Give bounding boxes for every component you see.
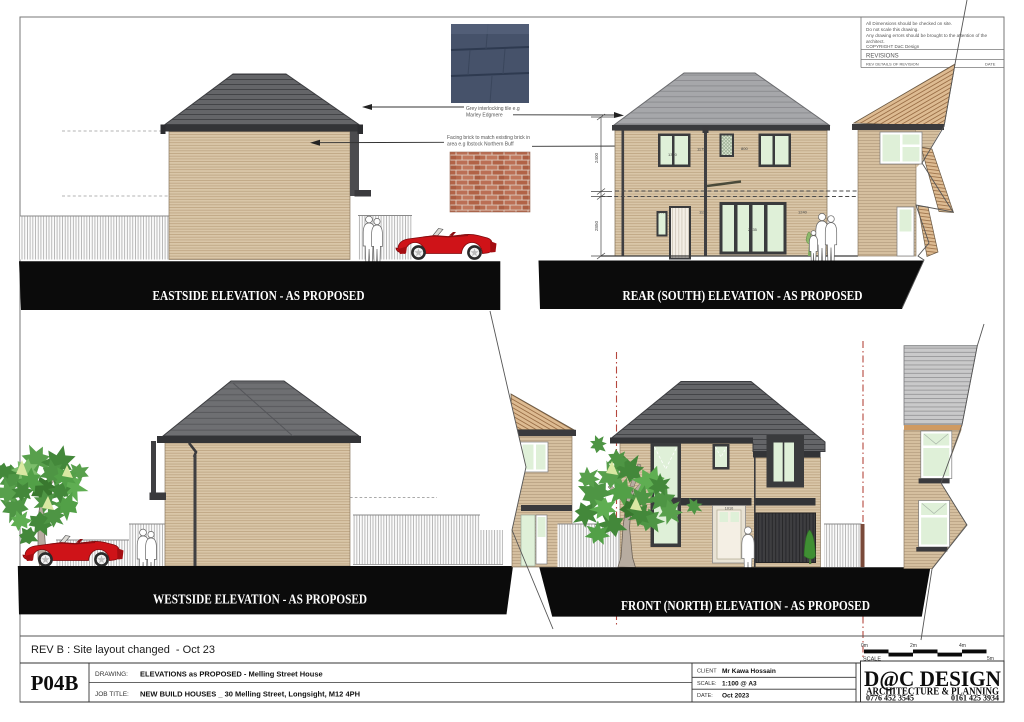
svg-text:DATE: DATE <box>985 62 996 67</box>
svg-text:0161 425 3934: 0161 425 3934 <box>951 694 999 703</box>
svg-text:1790: 1790 <box>658 210 668 215</box>
svg-text:Any drawing errors should be b: Any drawing errors should be brought to … <box>866 33 987 38</box>
svg-text:DATE:: DATE: <box>697 693 713 699</box>
svg-text:CLIENT: CLIENT <box>697 669 717 675</box>
svg-text:Grey interlocking tile e.g: Grey interlocking tile e.g <box>466 106 520 112</box>
svg-text:Marley Edgmere: Marley Edgmere <box>466 113 503 119</box>
svg-text:800: 800 <box>741 146 748 151</box>
svg-text:Do not scale this drawing.: Do not scale this drawing. <box>866 27 919 32</box>
svg-text:DRAWING:: DRAWING: <box>95 671 128 678</box>
svg-text:1350: 1350 <box>668 152 678 157</box>
svg-text:Oct 2023: Oct 2023 <box>722 693 749 700</box>
svg-text:REV DETAILS OF REVISION: REV DETAILS OF REVISION <box>866 62 919 67</box>
svg-text:WESTSIDE ELEVATION - AS PROPOS: WESTSIDE ELEVATION - AS PROPOSED <box>153 592 367 607</box>
svg-text:FRONT (NORTH) ELEVATION - AS P: FRONT (NORTH) ELEVATION - AS PROPOSED <box>621 598 870 614</box>
svg-text:1010: 1010 <box>725 507 733 511</box>
svg-text:1115: 1115 <box>699 210 708 215</box>
svg-text:Mr Kawa Hossain: Mr Kawa Hossain <box>722 668 776 675</box>
svg-text:1:100 @ A3: 1:100 @ A3 <box>722 681 757 688</box>
svg-text:P04B: P04B <box>31 671 79 695</box>
svg-text:SCALE:: SCALE: <box>697 681 717 687</box>
svg-text:2935: 2935 <box>748 227 758 232</box>
svg-text:2400: 2400 <box>594 152 599 163</box>
svg-text:Facing brick to match existing: Facing brick to match existing brick in <box>447 135 530 141</box>
svg-text:COPYRIGHT DaC Design: COPYRIGHT DaC Design <box>866 44 920 49</box>
svg-text:REV B : Site layout changed -: REV B : Site layout changed - Oct 23 <box>31 644 215 656</box>
svg-text:1175: 1175 <box>697 147 706 152</box>
svg-text:ELEVATIONS as PROPOSED - Melli: ELEVATIONS as PROPOSED - Melling Street … <box>140 670 323 679</box>
svg-text:2m: 2m <box>910 643 917 649</box>
svg-text:EASTSIDE ELEVATION - AS PROPOS: EASTSIDE ELEVATION - AS PROPOSED <box>153 288 365 303</box>
svg-text:0776 452 3545: 0776 452 3545 <box>866 694 914 703</box>
svg-text:All Dimensions should be check: All Dimensions should be checked on site… <box>866 21 952 26</box>
svg-text:REVISIONS: REVISIONS <box>866 54 899 60</box>
svg-text:area e.g Ibstock Northern Buff: area e.g Ibstock Northern Buff <box>447 142 514 148</box>
svg-text:0m: 0m <box>861 643 868 649</box>
svg-text:1240: 1240 <box>798 210 808 215</box>
svg-text:NEW BUILD HOUSES _ 30 Melling: NEW BUILD HOUSES _ 30 Melling Street, Lo… <box>140 690 360 699</box>
svg-text:JOB TITLE:: JOB TITLE: <box>95 691 129 698</box>
svg-text:REAR (SOUTH) ELEVATION - AS PR: REAR (SOUTH) ELEVATION - AS PROPOSED <box>623 288 863 304</box>
svg-text:2850: 2850 <box>594 220 599 231</box>
svg-text:4m: 4m <box>959 643 966 649</box>
